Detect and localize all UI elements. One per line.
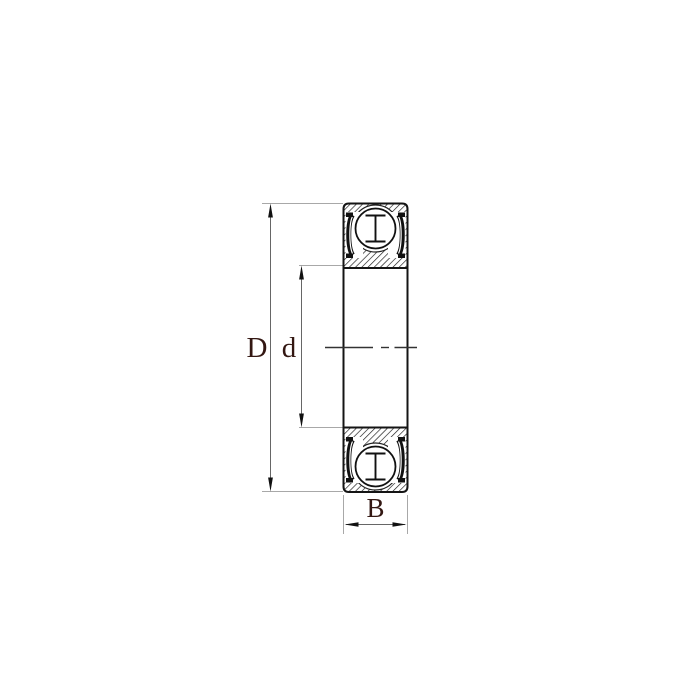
arrowhead-left-icon: [345, 522, 359, 527]
arrowhead-right-icon: [393, 522, 407, 527]
arrowhead-down-icon: [268, 478, 273, 492]
bearing-diagram: D d: [0, 0, 700, 700]
bearing-top-section: [344, 204, 408, 269]
drawing-canvas: D d: [0, 0, 700, 700]
label-bore-diameter: d: [282, 332, 297, 364]
seal-left-anchor-top: [346, 213, 353, 218]
label-outer-diameter: D: [247, 332, 268, 364]
seal-left-anchor-bottom: [346, 254, 353, 259]
seal-right-anchor-bottom: [398, 254, 405, 259]
arrowhead-up-icon: [299, 266, 304, 280]
seal-right-anchor-bottom: [398, 478, 405, 483]
seal-right-anchor-top: [398, 437, 405, 442]
bearing-bottom-section: [344, 428, 408, 493]
arrowhead-up-icon: [268, 204, 273, 218]
label-width: B: [366, 493, 384, 523]
dimension-width: B: [344, 493, 408, 534]
seal-left-anchor-top: [346, 437, 353, 442]
seal-left-anchor-bottom: [346, 478, 353, 483]
seal-right-anchor-top: [398, 213, 405, 218]
dimension-bore-diameter: d: [282, 266, 343, 428]
arrowhead-down-icon: [299, 414, 304, 428]
